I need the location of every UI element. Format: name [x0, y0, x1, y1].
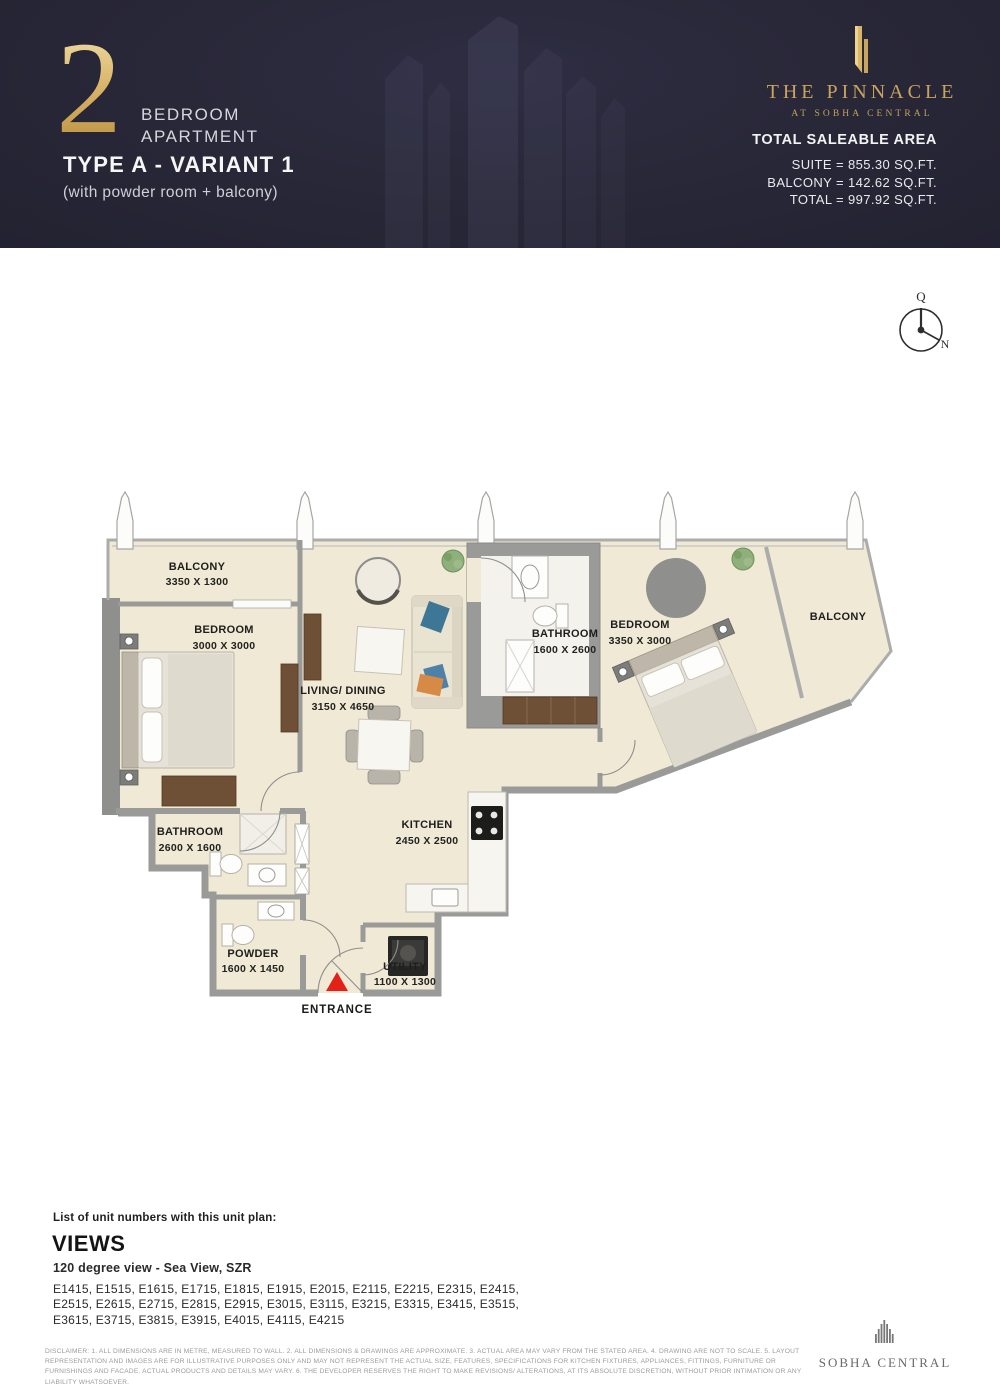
plant-icon: [442, 550, 464, 572]
dims-powder: 1600 X 1450: [222, 963, 285, 975]
kitchen-sink-icon: [432, 889, 458, 906]
dims-balcony-left: 3350 X 1300: [166, 576, 229, 588]
label-bathroom-center: BATHROOM: [532, 628, 598, 640]
tower-silhouette: [468, 16, 518, 248]
views-heading: VIEWS: [52, 1231, 125, 1257]
compass-center-dot: [918, 327, 925, 334]
coffee-table-icon: [354, 626, 404, 674]
toilet-tank-icon: [222, 924, 233, 946]
brand-name: THE PINNACLE: [762, 81, 962, 104]
unit-list-title: List of unit numbers with this unit plan…: [53, 1212, 277, 1224]
dims-bathroom-center: 1600 X 2600: [534, 644, 597, 656]
toilet-tank-icon: [556, 604, 568, 628]
sobha-central-wordmark: SOBHA CENTRAL: [818, 1355, 952, 1371]
dims-kitchen: 2450 X 2500: [396, 835, 459, 847]
label-entrance: ENTRANCE: [301, 1004, 372, 1016]
area-title: TOTAL SALEABLE AREA: [752, 132, 937, 148]
plant-icon: [732, 548, 754, 570]
label-balcony-right: BALCONY: [810, 611, 867, 623]
dims-bedroom-right: 3350 X 3000: [609, 635, 672, 647]
vanity-icon: [248, 864, 286, 886]
sofa-icon: [412, 596, 462, 708]
unit-type-label: BEDROOM APARTMENT: [141, 104, 259, 148]
label-utility: UTILITY: [383, 961, 427, 973]
dims-utility: 1100 X 1300: [374, 976, 436, 988]
bed-left-icon: [120, 634, 234, 785]
pinnacle-logo-icon: [762, 24, 962, 74]
armchair-icon: [356, 558, 400, 603]
label-living: LIVING/ DINING: [300, 685, 385, 697]
unit-type-line1: BEDROOM: [141, 105, 240, 124]
variant-subtitle: (with powder room + balcony): [63, 184, 278, 202]
tower-silhouette: [524, 48, 562, 248]
toilet-icon: [533, 606, 557, 626]
area-suite: SUITE = 855.30 SQ.FT.: [752, 156, 937, 174]
dims-bathroom-left: 2600 X 1600: [159, 842, 222, 854]
disclaimer-text: DISCLAIMER: 1. ALL DIMENSIONS ARE IN MET…: [45, 1347, 817, 1385]
toilet-icon: [232, 926, 254, 945]
tower-silhouette: [428, 82, 450, 248]
label-bedroom-right: BEDROOM: [610, 619, 670, 631]
bedroom-count: 2: [56, 22, 122, 154]
wardrobe-icon: [503, 697, 597, 724]
compass-qibla-north: Q N: [888, 288, 960, 366]
brand-tagline: AT SOBHA CENTRAL: [762, 109, 962, 119]
sobha-central-logo: SOBHA CENTRAL: [818, 1316, 952, 1371]
tv-console-icon: [304, 614, 321, 680]
north-label: N: [941, 337, 950, 351]
area-balcony: BALCONY = 142.62 SQ.FT.: [752, 174, 937, 192]
sobha-building-icon: [872, 1316, 898, 1343]
console-icon: [281, 664, 298, 732]
area-total: TOTAL = 997.92 SQ.FT.: [752, 191, 937, 209]
views-description: 120 degree view - Sea View, SZR: [53, 1261, 252, 1275]
label-bedroom-left: BEDROOM: [194, 624, 254, 636]
unit-type-line2: APARTMENT: [141, 127, 259, 146]
toilet-icon: [220, 855, 242, 874]
label-kitchen: KITCHEN: [402, 819, 453, 831]
bathroom-center-door-gap: [467, 558, 481, 602]
cooktop-icon: [471, 806, 503, 840]
bedroom-left-thick-wall: [102, 598, 120, 815]
unit-numbers-list: E1415, E1515, E1615, E1715, E1815, E1915…: [53, 1282, 531, 1328]
label-bathroom-left: BATHROOM: [157, 826, 223, 838]
tower-silhouette: [601, 98, 625, 248]
rug-icon: [646, 558, 706, 618]
tower-silhouette: [385, 55, 423, 248]
label-balcony-left: BALCONY: [169, 561, 226, 573]
saleable-area-block: TOTAL SALEABLE AREA SUITE = 855.30 SQ.FT…: [752, 132, 937, 209]
dims-living: 3150 X 4650: [312, 701, 375, 713]
pinnacle-brand-block: THE PINNACLE AT SOBHA CENTRAL: [762, 24, 962, 119]
tower-silhouette: [566, 76, 596, 248]
floor-plan-drawing: BALCONY 3350 X 1300 BEDROOM 3000 X 3000 …: [0, 470, 1000, 1040]
label-powder: POWDER: [227, 948, 278, 960]
dresser-icon: [162, 776, 236, 806]
qibla-label: Q: [916, 289, 926, 304]
toilet-tank-icon: [210, 852, 221, 876]
dims-bedroom-left: 3000 X 3000: [193, 640, 256, 652]
floor-plan-brochure-page: 2 BEDROOM APARTMENT TYPE A - VARIANT 1 (…: [0, 0, 1000, 1385]
variant-title: TYPE A - VARIANT 1: [63, 152, 295, 178]
balcony-glass-door: [233, 600, 291, 608]
hero-header: 2 BEDROOM APARTMENT TYPE A - VARIANT 1 (…: [0, 0, 1000, 248]
